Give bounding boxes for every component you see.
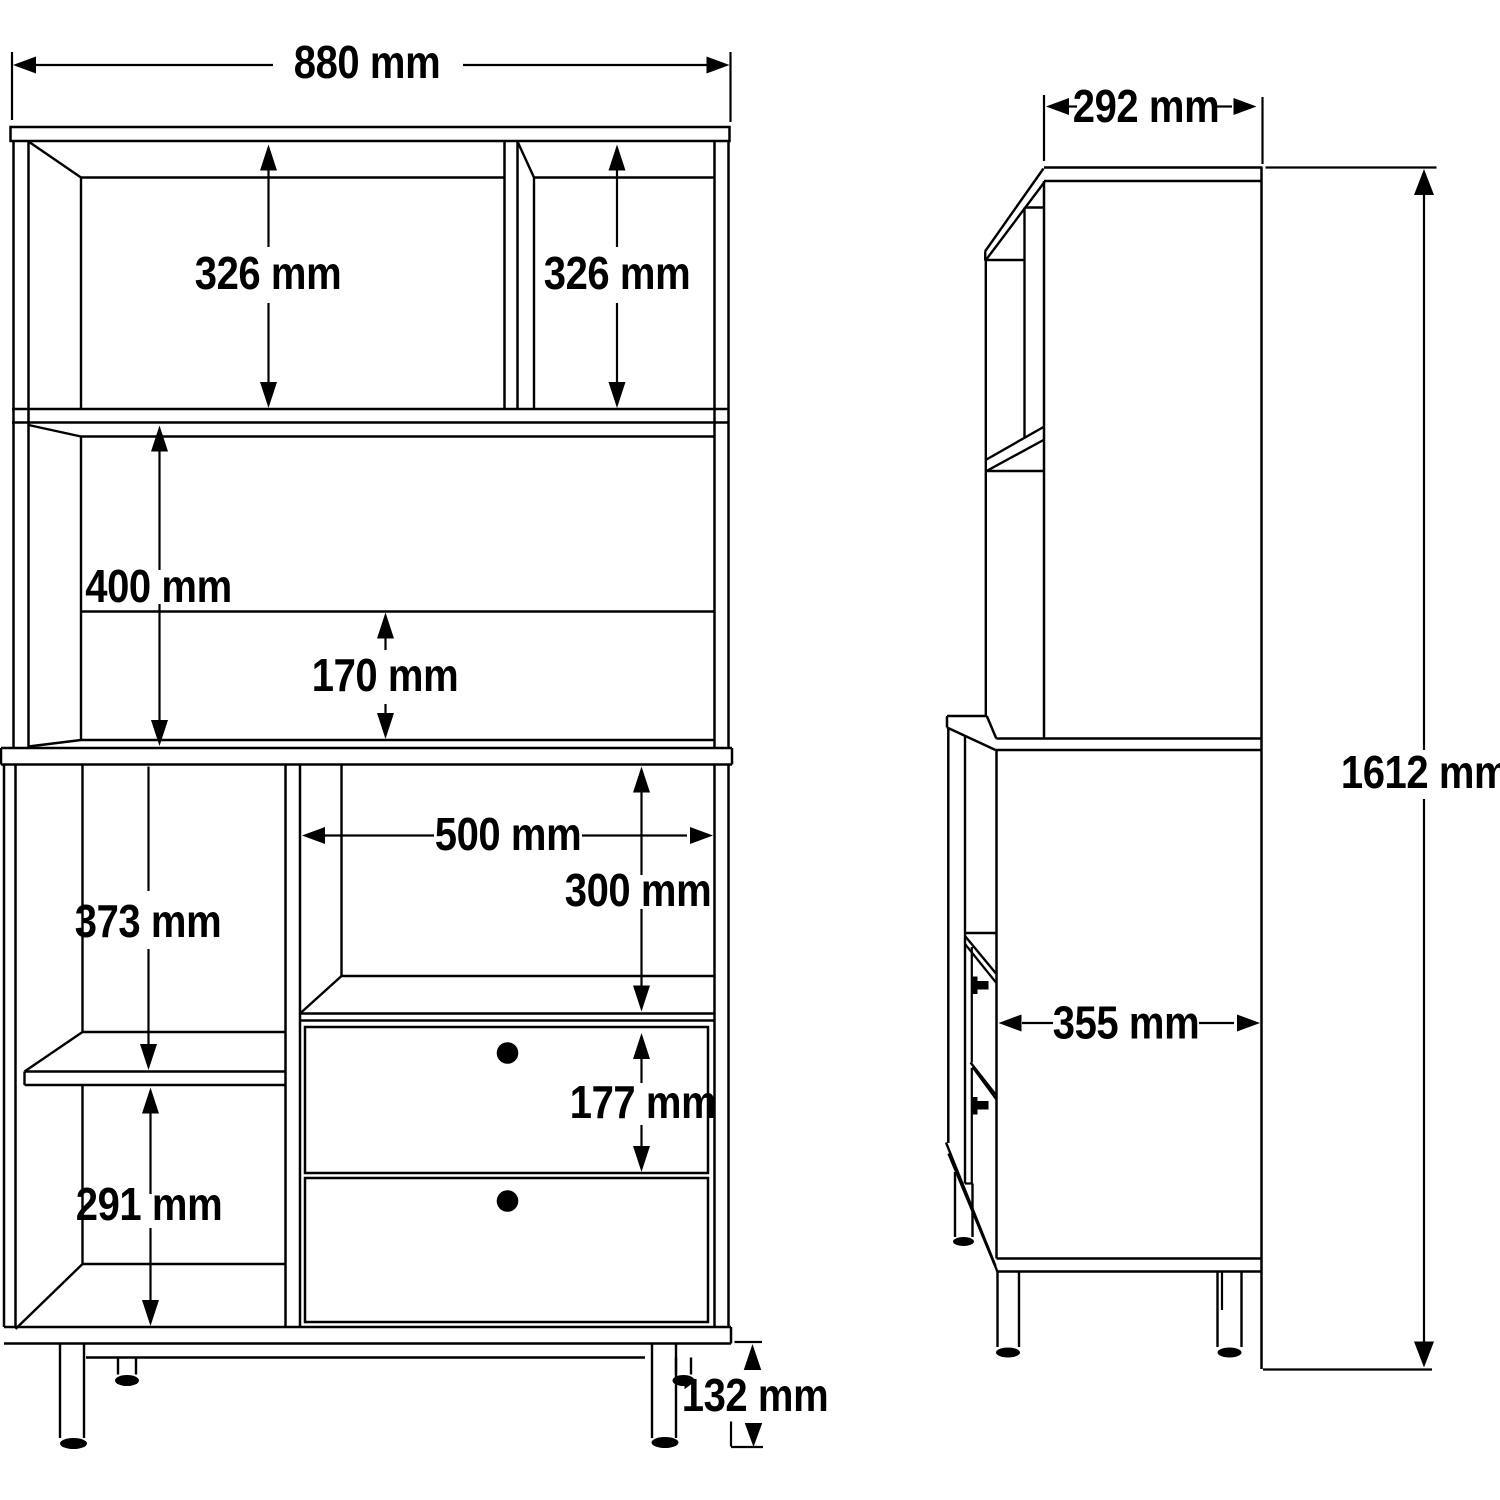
svg-text:373 mm: 373 mm	[75, 896, 221, 947]
svg-text:326 mm: 326 mm	[544, 248, 690, 299]
svg-text:291 mm: 291 mm	[76, 1179, 222, 1230]
svg-text:1612 mm: 1612 mm	[1341, 747, 1500, 798]
svg-text:177 mm: 177 mm	[570, 1077, 716, 1128]
svg-text:292 mm: 292 mm	[1073, 81, 1219, 132]
svg-text:500 mm: 500 mm	[435, 809, 581, 860]
svg-text:170 mm: 170 mm	[312, 650, 458, 701]
svg-text:400 mm: 400 mm	[85, 561, 231, 612]
svg-text:132 mm: 132 mm	[682, 1370, 828, 1421]
svg-text:880 mm: 880 mm	[294, 37, 440, 88]
svg-text:355 mm: 355 mm	[1053, 998, 1199, 1049]
svg-text:326 mm: 326 mm	[195, 248, 341, 299]
svg-text:300 mm: 300 mm	[565, 865, 711, 916]
